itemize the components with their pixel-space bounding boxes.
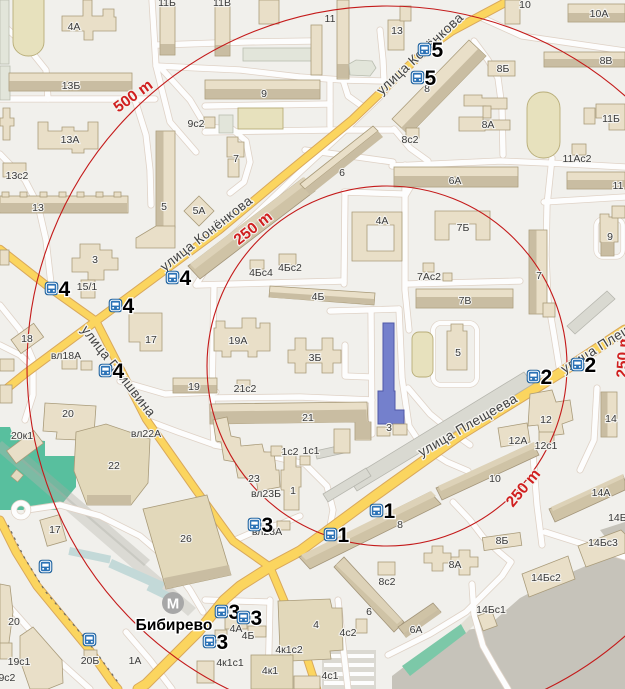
svg-text:22: 22 — [108, 460, 120, 472]
svg-text:вл23Б: вл23Б — [251, 488, 281, 500]
svg-text:5: 5 — [161, 201, 167, 213]
svg-text:6: 6 — [366, 606, 372, 618]
svg-text:9c2: 9c2 — [188, 118, 205, 130]
svg-text:10: 10 — [489, 473, 501, 485]
svg-text:3: 3 — [386, 422, 392, 434]
svg-text:14: 14 — [605, 413, 617, 425]
svg-text:1c1: 1c1 — [303, 445, 320, 457]
svg-text:4А: 4А — [230, 623, 243, 635]
svg-text:4Б: 4Б — [242, 630, 255, 642]
svg-text:11В: 11В — [213, 0, 231, 9]
svg-text:11: 11 — [613, 180, 624, 192]
svg-text:18: 18 — [21, 333, 33, 345]
svg-text:8В: 8В — [600, 55, 613, 67]
svg-text:13Б: 13Б — [62, 80, 81, 92]
svg-text:10А: 10А — [590, 8, 609, 20]
svg-text:7В: 7В — [459, 295, 472, 307]
svg-text:14Бc1: 14Бc1 — [476, 604, 506, 616]
svg-text:20: 20 — [8, 616, 20, 628]
svg-text:13: 13 — [32, 202, 44, 214]
svg-text:3: 3 — [217, 631, 229, 654]
svg-text:М: М — [167, 596, 180, 613]
svg-text:5: 5 — [455, 347, 461, 359]
svg-text:12c1: 12c1 — [535, 440, 558, 452]
svg-text:11: 11 — [325, 13, 336, 25]
svg-text:3: 3 — [262, 514, 274, 537]
svg-text:3Б: 3Б — [309, 352, 322, 364]
svg-text:1c2: 1c2 — [282, 446, 299, 458]
svg-text:9: 9 — [607, 231, 613, 243]
svg-text:17: 17 — [49, 524, 61, 536]
svg-text:20Б: 20Б — [81, 655, 100, 667]
svg-text:14Бc2: 14Бc2 — [531, 572, 561, 584]
svg-text:3: 3 — [251, 607, 263, 630]
svg-text:вл18А: вл18А — [51, 350, 81, 362]
svg-text:4: 4 — [59, 278, 71, 301]
svg-text:4А: 4А — [68, 21, 81, 33]
svg-text:4к1: 4к1 — [262, 665, 278, 677]
svg-text:Бибирево: Бибирево — [136, 617, 213, 634]
svg-text:12: 12 — [540, 414, 552, 426]
svg-text:12А: 12А — [509, 435, 528, 447]
svg-text:4: 4 — [123, 295, 135, 318]
svg-text:19c1: 19c1 — [8, 656, 31, 668]
svg-text:4c1: 4c1 — [322, 670, 339, 682]
svg-text:11Б: 11Б — [158, 0, 176, 9]
svg-text:6А: 6А — [410, 624, 423, 636]
svg-text:8c2: 8c2 — [379, 576, 396, 588]
svg-text:7: 7 — [233, 153, 239, 165]
svg-text:8: 8 — [397, 519, 403, 531]
svg-text:5: 5 — [432, 39, 444, 62]
svg-text:2: 2 — [541, 366, 553, 389]
svg-text:14Бс: 14Бс — [608, 512, 625, 524]
svg-text:26: 26 — [180, 533, 192, 545]
svg-text:1: 1 — [338, 524, 350, 547]
svg-text:21c2: 21c2 — [234, 383, 257, 395]
svg-text:13: 13 — [391, 25, 403, 37]
svg-text:7Ас2: 7Ас2 — [417, 271, 441, 283]
svg-text:20: 20 — [62, 408, 74, 420]
svg-text:4Б: 4Б — [312, 291, 325, 303]
svg-text:8А: 8А — [482, 119, 495, 131]
svg-text:2: 2 — [585, 354, 597, 377]
svg-text:4: 4 — [313, 619, 319, 631]
svg-text:5: 5 — [425, 67, 437, 90]
svg-text:11Б: 11Б — [602, 113, 620, 125]
svg-text:19c2: 19c2 — [0, 672, 16, 684]
svg-text:8Б: 8Б — [496, 535, 509, 547]
svg-text:14Бc3: 14Бc3 — [588, 537, 618, 549]
svg-text:20к1: 20к1 — [11, 430, 33, 442]
svg-text:10: 10 — [519, 0, 531, 11]
svg-text:4Бс4: 4Бс4 — [249, 267, 273, 279]
svg-text:13c2: 13c2 — [6, 170, 29, 182]
svg-text:15/1: 15/1 — [77, 281, 98, 293]
svg-text:8c2: 8c2 — [402, 134, 419, 146]
svg-text:14А: 14А — [592, 487, 611, 499]
svg-text:4Бс2: 4Бс2 — [278, 262, 302, 274]
svg-text:19: 19 — [188, 381, 200, 393]
svg-text:21: 21 — [302, 412, 314, 424]
svg-text:8Б: 8Б — [497, 63, 510, 75]
svg-text:4c2: 4c2 — [340, 627, 357, 639]
svg-text:6: 6 — [339, 167, 345, 179]
svg-text:19А: 19А — [229, 335, 248, 347]
svg-text:8А: 8А — [449, 559, 462, 571]
svg-text:4: 4 — [113, 360, 125, 383]
svg-text:4: 4 — [180, 267, 192, 290]
svg-text:9: 9 — [261, 88, 267, 100]
svg-text:23: 23 — [248, 473, 260, 485]
svg-text:17: 17 — [145, 334, 157, 346]
svg-text:6А: 6А — [449, 175, 462, 187]
svg-text:7Б: 7Б — [457, 222, 470, 234]
svg-text:4к1c1: 4к1c1 — [216, 657, 244, 669]
svg-text:3: 3 — [92, 254, 98, 266]
svg-text:5А: 5А — [193, 205, 206, 217]
svg-text:4к1c2: 4к1c2 — [275, 644, 303, 656]
svg-text:1А: 1А — [129, 655, 142, 667]
svg-text:13А: 13А — [61, 134, 80, 146]
svg-text:вл22А: вл22А — [131, 428, 161, 440]
svg-text:11Ас2: 11Ас2 — [563, 153, 592, 165]
svg-text:1: 1 — [290, 485, 296, 497]
svg-text:1: 1 — [384, 500, 396, 523]
svg-text:7: 7 — [536, 270, 542, 282]
svg-text:4А: 4А — [376, 215, 389, 227]
